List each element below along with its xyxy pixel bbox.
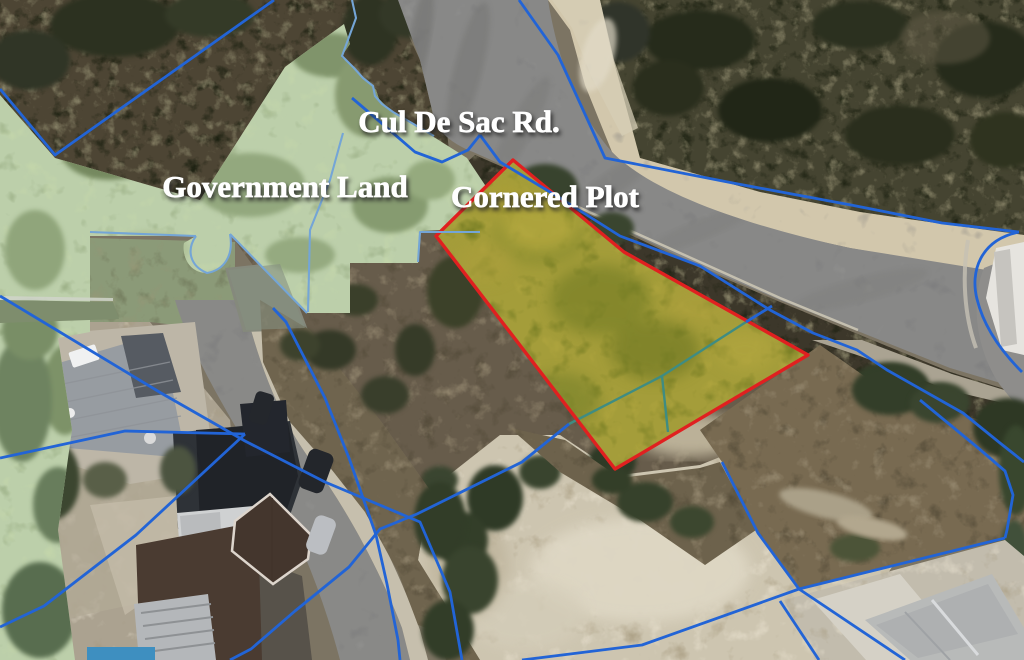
svg-text:Government Land: Government Land	[162, 169, 407, 204]
svg-text:Cornered Plot: Cornered Plot	[451, 179, 640, 214]
svg-text:Cul De Sac Rd.: Cul De Sac Rd.	[358, 104, 560, 139]
